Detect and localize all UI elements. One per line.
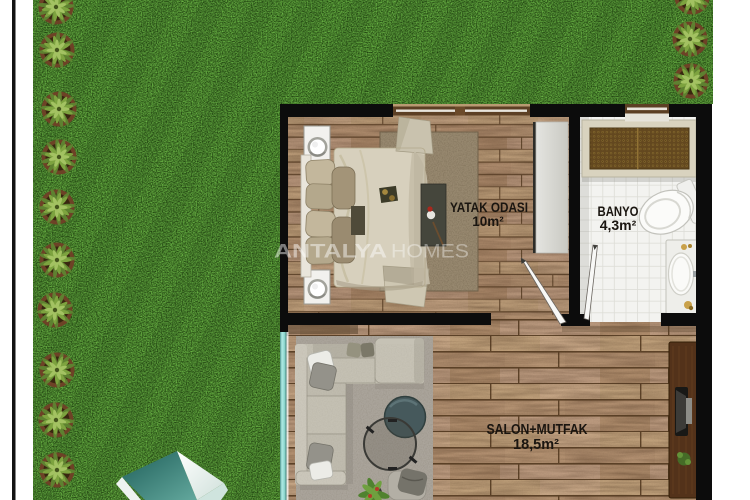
svg-text:4,3m²: 4,3m² — [600, 217, 637, 233]
svg-text:SALON+MUTFAK: SALON+MUTFAK — [487, 422, 588, 438]
svg-text:10m²: 10m² — [472, 214, 504, 229]
svg-text:18,5m²: 18,5m² — [513, 437, 559, 453]
svg-text:YATAK ODASI: YATAK ODASI — [450, 200, 528, 215]
svg-text:ANTALYA: ANTALYA — [274, 242, 387, 263]
svg-text:HOMES: HOMES — [391, 242, 469, 263]
